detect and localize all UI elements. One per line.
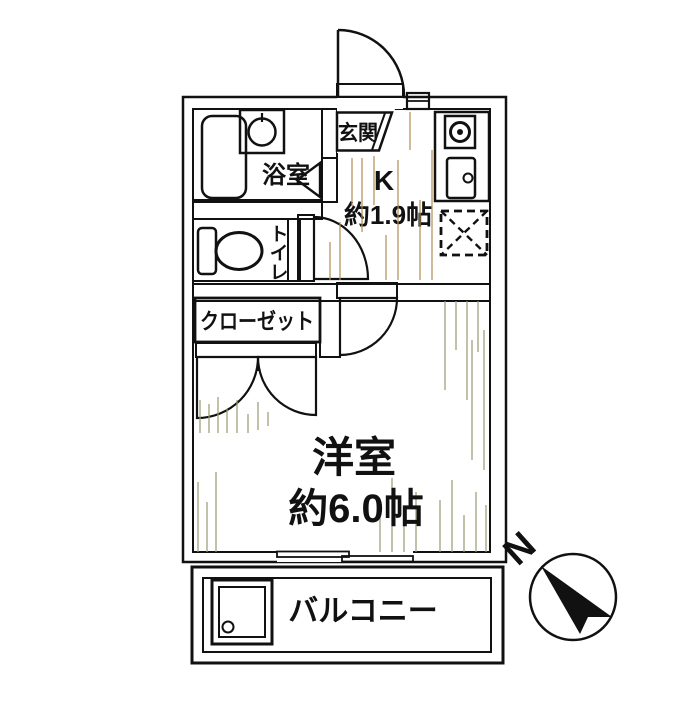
entrance-label: 玄関 (338, 121, 378, 145)
kitchen-label: K (374, 165, 394, 196)
toilet-label: トイレ (267, 224, 288, 281)
sliding-window (277, 551, 413, 562)
balcony-label: バルコニー (288, 595, 437, 628)
closet-label: クローゼット (200, 309, 314, 334)
stove-burner-dot-icon (457, 129, 463, 135)
room-label: 洋室 (312, 434, 396, 481)
floor-plan: 玄関 浴室 トイレ (0, 0, 700, 700)
entrance-doorway (337, 97, 403, 109)
floor-plan-page: 玄関 浴室 トイレ (0, 0, 700, 700)
kitchen-size-label: 約1.9帖 (344, 200, 432, 230)
room-size-label: 約6.0帖 (288, 487, 424, 531)
